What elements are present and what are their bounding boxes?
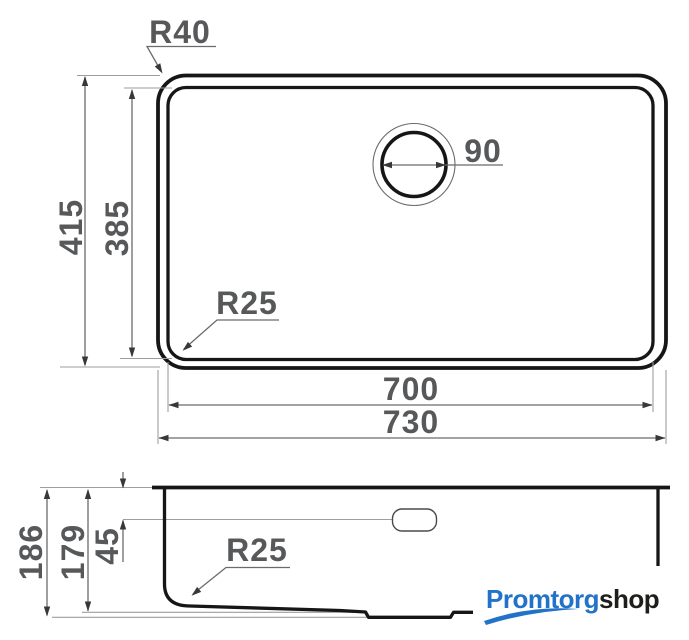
dimension-label-179: 179 — [55, 524, 91, 580]
arrowhead-bottom — [44, 607, 50, 617]
logo-text-secondary: shop — [599, 584, 659, 614]
dimension-label-r40: R40 — [149, 14, 211, 50]
arrowhead-bottom — [82, 357, 88, 367]
label-bottom-radius: R25 — [189, 532, 290, 598]
arrowhead-right — [656, 435, 666, 441]
label-corner-radius-inner: R25 — [180, 285, 279, 353]
dimension-label-45: 45 — [89, 527, 125, 565]
arrowhead-left — [169, 402, 179, 408]
dim-overflow-offset: 45 — [89, 472, 126, 565]
arrowhead-top — [129, 89, 135, 99]
arrowhead-right — [643, 402, 653, 408]
top-view: 90 R40 R25 415 — [53, 14, 666, 444]
dimension-label-385: 385 — [99, 200, 135, 256]
dimension-label-r25-side: R25 — [226, 532, 288, 568]
dim-height-inner: 385 — [99, 88, 172, 359]
dim-depth-bowl: 179 — [55, 489, 91, 612]
arrowhead-left — [159, 435, 169, 441]
leader-line — [193, 568, 290, 595]
arrowhead-bottom — [85, 602, 91, 612]
dimension-label-186: 186 — [13, 524, 49, 580]
label-corner-radius-outer: R40 — [147, 14, 216, 75]
arrowhead-bottom — [129, 348, 135, 358]
sink-dimension-drawing: 90 R40 R25 415 — [0, 0, 689, 640]
dimension-label-r25-top: R25 — [216, 285, 278, 321]
leader-line — [184, 320, 279, 349]
arrowhead-top — [85, 489, 91, 499]
overflow-slot — [393, 509, 437, 531]
dimension-label-730: 730 — [383, 404, 439, 440]
logo-wordmark: Promtorgshop — [486, 584, 659, 614]
dimension-label-drain: 90 — [464, 133, 502, 169]
sink-outer-contour — [158, 76, 666, 369]
arrowhead-top — [82, 76, 88, 86]
brand-logo: Promtorgshop — [484, 584, 659, 625]
arrowhead — [155, 63, 166, 75]
bowl-profile — [165, 489, 474, 617]
dim-depth-total: 186 — [13, 489, 50, 617]
arrowhead-top — [44, 489, 50, 499]
dimension-label-700: 700 — [383, 371, 439, 407]
dimension-label-415: 415 — [53, 199, 89, 255]
